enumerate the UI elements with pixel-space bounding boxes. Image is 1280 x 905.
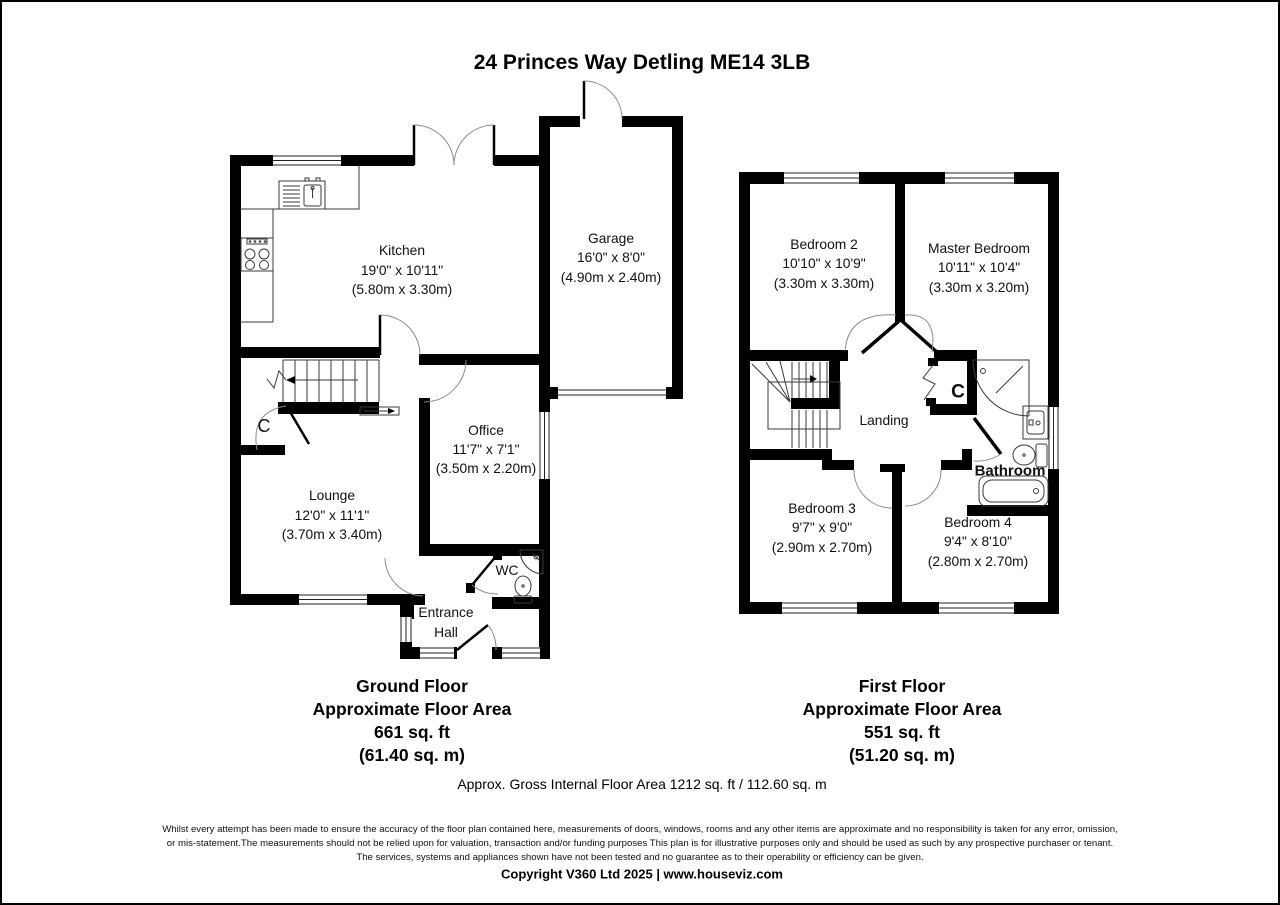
bathroom-door [974, 418, 1001, 461]
ground-floor-name: Ground Floor [313, 675, 512, 698]
stove-icon [241, 238, 273, 271]
wc-room-label: WC [496, 564, 519, 578]
kitchen-sink-icon [279, 178, 325, 209]
bedroom3-door [854, 470, 892, 508]
shower-icon [973, 360, 1029, 416]
bedroom2-dims-imperial: 10'10" x 10'9" [782, 257, 865, 271]
master-bedroom-dims-imperial: 10'11" x 10'4" [938, 261, 1020, 275]
bedroom2-room-label: Bedroom 2 [790, 238, 858, 252]
bathroom-window [1048, 407, 1059, 469]
disclaimer-line1: Whilst every attempt has been made to en… [60, 823, 1220, 837]
floorplan-page: 24 Princes Way Detling ME14 3LB Kitchen … [0, 0, 1280, 905]
bedroom4-door [905, 470, 941, 506]
garage-side-door-opening [580, 116, 622, 128]
wc-door [472, 555, 498, 594]
kitchen-room-label: Kitchen [379, 244, 425, 258]
bedroom3-dims-metric: (2.90m x 2.70m) [772, 541, 872, 555]
bathtub-icon [979, 476, 1048, 506]
office-door [424, 360, 466, 402]
master-bedroom-window [945, 172, 1014, 184]
ground-floor-area-ft: 661 sq. ft [313, 721, 512, 744]
office-room-label: Office [468, 424, 504, 438]
bedroom3-window [782, 602, 857, 614]
bedroom3-dims-imperial: 9'7" x 9'0" [792, 521, 852, 535]
garage-door [558, 390, 666, 395]
disclaimer-line2: or mis-statement.The measurements should… [60, 837, 1220, 851]
bedroom2-dims-metric: (3.30m x 3.30m) [774, 277, 874, 291]
garage-dims-imperial: 16'0" x 8'0" [577, 251, 645, 265]
bedroom2-window [784, 172, 859, 184]
first-floor-area-label: Approximate Floor Area [803, 698, 1002, 721]
bedroom4-room-label: Bedroom 4 [944, 516, 1012, 530]
master-bedroom-room-label: Master Bedroom [928, 242, 1030, 256]
kitchen-dims-imperial: 19'0" x 10'11" [361, 264, 443, 278]
bedroom4-dims-imperial: 9'4" x 8'10" [944, 535, 1012, 549]
kitchen-dims-metric: (5.80m x 3.30m) [352, 283, 452, 297]
cupboard-label-first: C [951, 383, 965, 402]
bedroom4-window [939, 602, 1014, 614]
bathroom-room-label: Bathroom [975, 464, 1046, 479]
lounge-room-label: Lounge [309, 489, 355, 503]
ground-floor-area-m: (61.40 sq. m) [313, 744, 512, 767]
first-floor-area-m: (51.20 sq. m) [803, 744, 1002, 767]
garage-room-label: Garage [588, 232, 634, 246]
first-floor-name: First Floor [803, 675, 1002, 698]
copyright-line: Copyright V360 Ltd 2025 | www.houseviz.c… [501, 867, 783, 882]
first-floor-area-ft: 551 sq. ft [803, 721, 1002, 744]
bathroom-sink-icon [1023, 406, 1048, 439]
cupboard-label-ground: C [258, 417, 271, 435]
bedroom2-door [845, 315, 899, 353]
ground-floor-area-label: Approximate Floor Area [313, 698, 512, 721]
office-window [539, 412, 550, 479]
lounge-dims-imperial: 12'0" x 11'1" [295, 509, 370, 523]
bedroom3-room-label: Bedroom 3 [788, 502, 856, 516]
kitchen-window [273, 155, 341, 166]
disclaimer-line3: The services, systems and appliances sho… [60, 851, 1220, 865]
office-dims-imperial: 11'7" x 7'1" [453, 443, 520, 457]
ground-floor-summary: Ground Floor Approximate Floor Area 661 … [313, 675, 512, 767]
disclaimer-text: Whilst every attempt has been made to en… [60, 823, 1220, 865]
landing-room-label: Landing [859, 414, 908, 428]
page-title: 24 Princes Way Detling ME14 3LB [474, 51, 811, 75]
entrance-side-window [400, 617, 412, 642]
floor-plan-canvas [2, 2, 1280, 812]
ground-floor-plan [230, 81, 683, 659]
lounge-door [385, 558, 423, 596]
cupboard-door-first [923, 364, 935, 400]
bedroom4-dims-metric: (2.80m x 2.70m) [928, 555, 1028, 569]
entrance-hall-label-line2: Hall [434, 626, 458, 640]
kitchen-hall-door [380, 315, 420, 355]
kitchen-french-doors [414, 125, 494, 165]
office-dims-metric: (3.50m x 2.20m) [436, 462, 536, 476]
entrance-hall-label-line1: Entrance [418, 606, 473, 620]
master-bedroom-dims-metric: (3.30m x 3.20m) [929, 281, 1029, 295]
garage-side-door [584, 81, 622, 119]
front-door-opening [457, 647, 492, 659]
master-bedroom-door [902, 315, 938, 353]
first-floor-summary: First Floor Approximate Floor Area 551 s… [803, 675, 1002, 767]
front-door [457, 625, 496, 650]
lounge-dims-metric: (3.70m x 3.40m) [282, 528, 382, 542]
gross-internal-area: Approx. Gross Internal Floor Area 1212 s… [457, 776, 826, 792]
lounge-window [299, 594, 367, 605]
garage-dims-metric: (4.90m x 2.40m) [561, 271, 661, 285]
